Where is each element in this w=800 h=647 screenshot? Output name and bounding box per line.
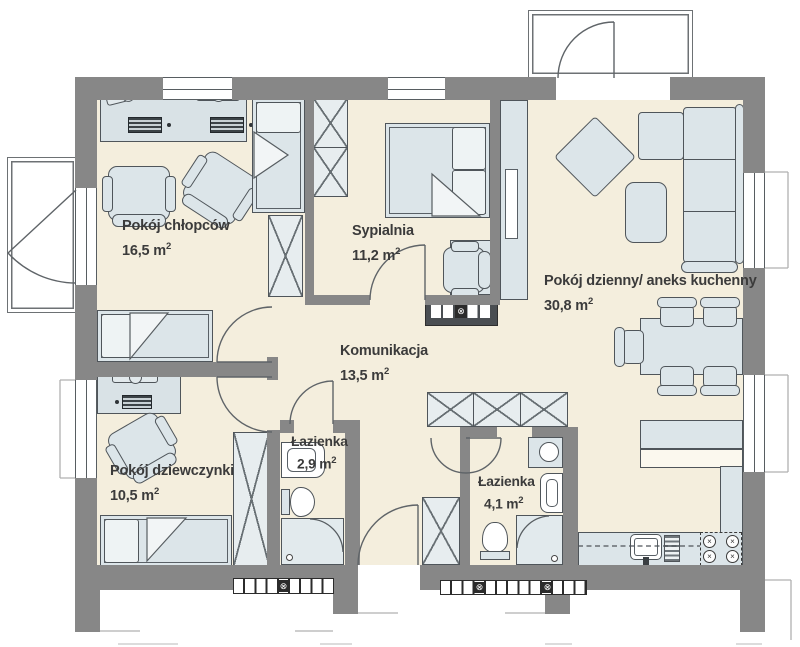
kitchen-peninsula-counter — [640, 420, 743, 449]
wall — [532, 427, 563, 437]
window — [388, 77, 445, 100]
tall-cabinet-icon — [500, 100, 528, 300]
dining-chair-icon — [703, 366, 737, 388]
coffee-table-icon — [625, 182, 667, 243]
room-label-boys: Pokój chłopców 16,5 m2 — [122, 219, 230, 260]
wardrobe-icon — [313, 147, 348, 197]
wall — [563, 427, 578, 567]
terrace — [7, 157, 78, 313]
washing-machine-icon — [528, 437, 563, 468]
bed-icon — [100, 515, 232, 567]
shower-drain-icon — [286, 554, 293, 561]
wall — [313, 295, 370, 305]
room-area: 2,9 m2 — [297, 456, 348, 472]
entry-door-opening — [556, 77, 670, 100]
wall — [333, 420, 345, 433]
window — [743, 375, 765, 472]
room-label-bath-small: Łazienka 2,9 m2 — [291, 434, 348, 472]
wall — [75, 362, 277, 377]
chair-icon — [443, 247, 485, 293]
wardrobe-icon — [233, 432, 270, 566]
burner-icon: × — [703, 550, 716, 563]
radiator-valve-icon: ⊗ — [278, 580, 289, 592]
room-area: 11,2 m2 — [352, 247, 414, 265]
wardrobe-icon — [427, 392, 474, 427]
mouse-icon — [115, 400, 119, 404]
bed-icon — [97, 310, 213, 362]
sink-icon — [540, 473, 563, 513]
wall-stub — [333, 590, 358, 614]
room-area: 10,5 m2 — [110, 487, 234, 505]
floor-plan: ⊗ × × × × — [0, 0, 800, 647]
double-bed-icon — [385, 123, 490, 218]
toilet-icon — [482, 522, 508, 553]
room-area: 13,5 m2 — [340, 367, 428, 385]
radiator-valve-icon: ⊗ — [542, 582, 553, 593]
chair-icon — [108, 166, 170, 221]
entry-porch — [528, 10, 693, 78]
toilet-tank — [480, 551, 510, 560]
room-name: Pokój dzienny/ aneks kuchenny — [544, 274, 757, 290]
wardrobe-icon — [268, 215, 303, 297]
room-name: Komunikacja — [340, 344, 428, 360]
wardrobe-icon — [520, 392, 568, 427]
stove-icon: × × × × — [700, 532, 742, 566]
sofa-armrest — [681, 261, 738, 273]
room-name: Pokój dziewczynki — [110, 464, 234, 480]
wall — [280, 420, 294, 433]
room-name: Sypialnia — [352, 224, 414, 240]
radiator-valve-icon: ⊗ — [474, 582, 485, 593]
window — [75, 380, 97, 478]
room-label-bath-large: Łazienka 4,1 m2 — [478, 474, 535, 512]
burner-icon: × — [726, 550, 739, 563]
room-label-bedroom: Sypialnia 11,2 m2 — [352, 224, 414, 265]
wall — [425, 295, 500, 305]
shower-drain-icon — [551, 555, 558, 562]
room-name: Pokój chłopców — [122, 219, 230, 235]
wall — [470, 427, 497, 437]
dining-chair-icon — [622, 330, 644, 364]
wall — [460, 427, 470, 567]
wall — [75, 565, 765, 590]
wall — [490, 100, 500, 295]
wall — [743, 77, 765, 590]
terrace-door — [75, 188, 97, 285]
window — [163, 77, 232, 100]
wall — [305, 100, 314, 305]
room-label-hall: Komunikacja 13,5 m2 — [340, 344, 428, 385]
laptop-icon — [128, 117, 162, 133]
room-area: 4,1 m2 — [484, 496, 535, 512]
sofa-icon — [638, 112, 684, 160]
wall-stub — [75, 590, 100, 632]
wardrobe-icon — [422, 497, 460, 565]
laptop-icon — [210, 117, 244, 133]
wall-stub — [740, 590, 765, 632]
wall — [267, 357, 278, 380]
burner-icon: × — [703, 535, 716, 548]
room-name: Łazienka — [291, 434, 348, 449]
room-area: 16,5 m2 — [122, 242, 230, 260]
kitchen-side-counter — [720, 466, 743, 533]
radiator — [440, 580, 587, 595]
room-area: 30,8 m2 — [544, 297, 757, 315]
wardrobe-icon — [473, 392, 521, 427]
room-label-girls: Pokój dziewczynki 10,5 m2 — [110, 464, 234, 505]
wall — [267, 430, 280, 565]
laptop-icon — [122, 395, 152, 409]
dining-chair-icon — [660, 366, 694, 388]
toilet-tank — [281, 489, 290, 515]
wardrobe-icon — [313, 98, 348, 148]
garden-door-opening — [358, 565, 420, 590]
window — [743, 173, 765, 268]
room-name: Łazienka — [478, 474, 535, 489]
mouse-icon — [167, 123, 171, 127]
bed-icon — [252, 98, 305, 213]
radiator-valve-icon: ⊗ — [455, 305, 467, 318]
sofa-icon — [683, 107, 737, 263]
wall — [75, 77, 97, 590]
burner-icon: × — [726, 535, 739, 548]
room-label-living: Pokój dzienny/ aneks kuchenny 30,8 m2 — [544, 274, 757, 315]
dish-rack-icon — [664, 535, 680, 562]
